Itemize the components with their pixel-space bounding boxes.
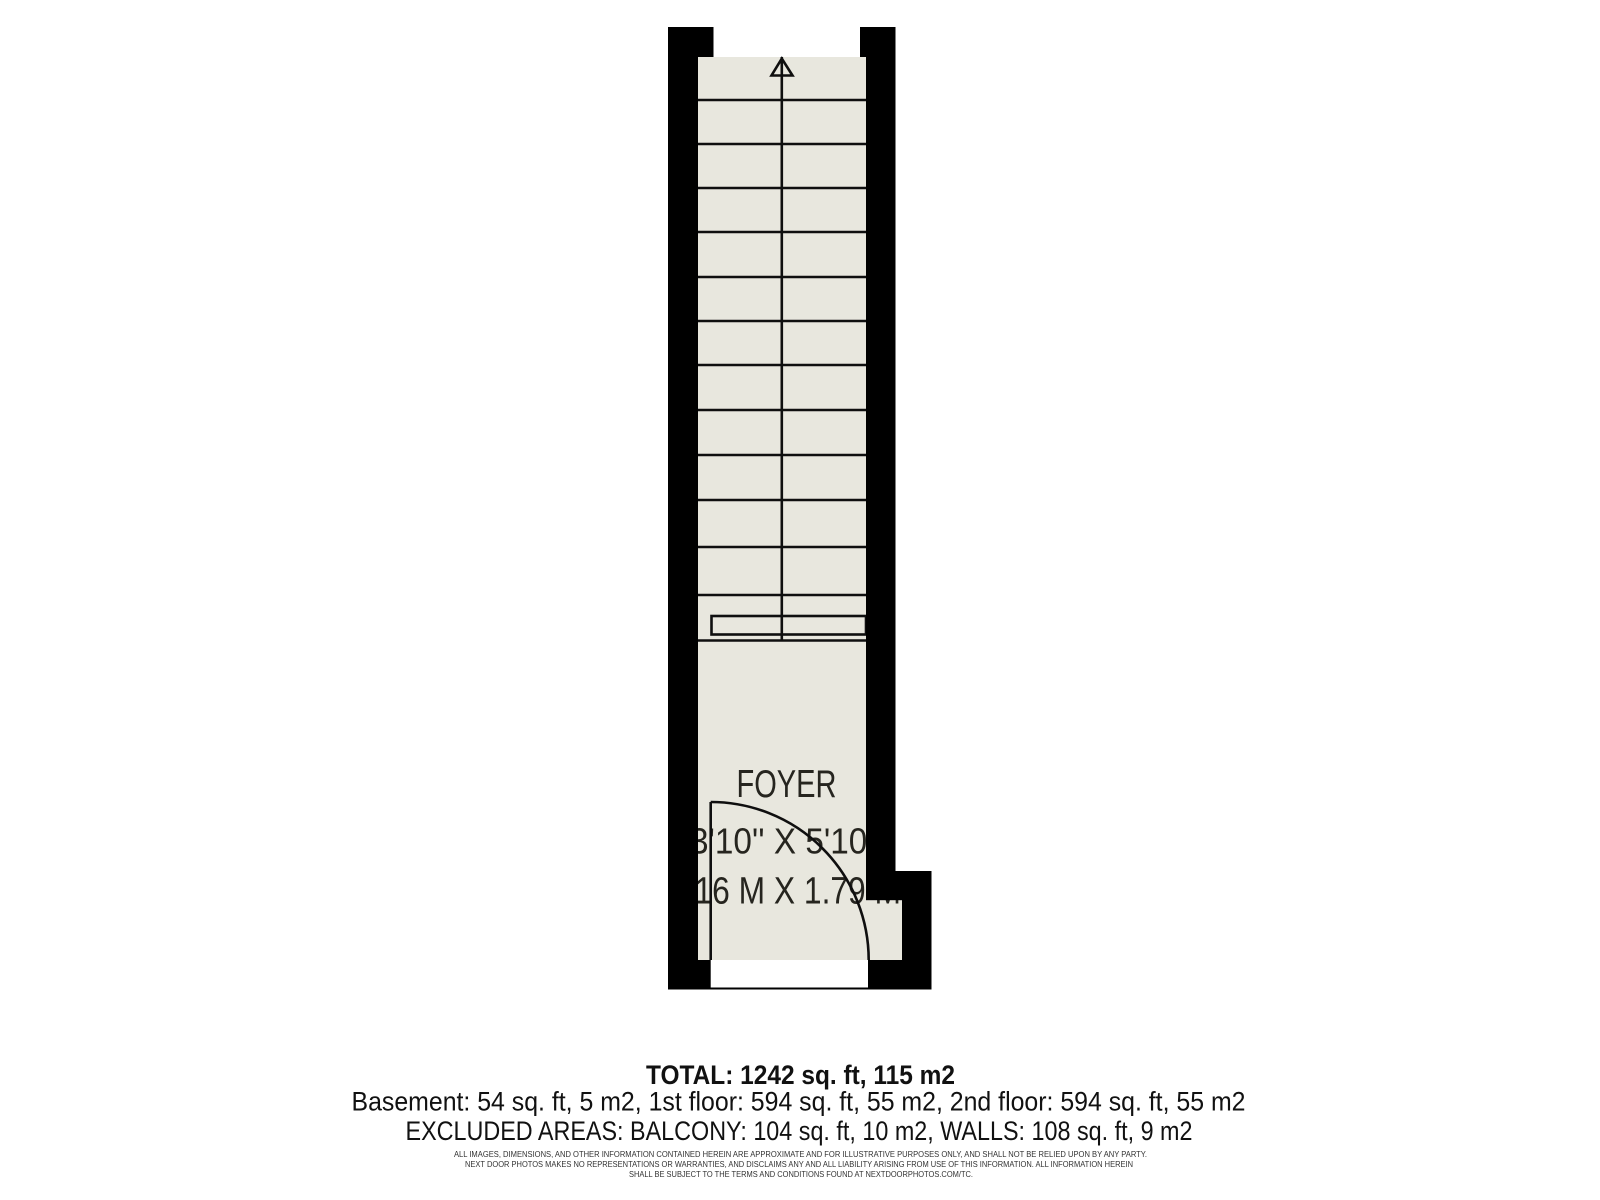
svg-text:NEXT DOOR PHOTOS MAKES NO REPR: NEXT DOOR PHOTOS MAKES NO REPRESENTATION… — [465, 1160, 1133, 1169]
svg-text:3'10'' X 5'10'': 3'10'' X 5'10'' — [690, 821, 880, 862]
svg-text:TOTAL: 1242 sq. ft, 115 m2: TOTAL: 1242 sq. ft, 115 m2 — [646, 1060, 955, 1090]
svg-text:Basement: 54 sq. ft, 5 m2, 1st: Basement: 54 sq. ft, 5 m2, 1st floor: 59… — [352, 1087, 1246, 1117]
svg-text:SHALL BE SUBJECT TO THE TERMS: SHALL BE SUBJECT TO THE TERMS AND CONDIT… — [629, 1170, 973, 1179]
svg-text:FOYER: FOYER — [737, 763, 837, 806]
svg-text:ALL IMAGES, DIMENSIONS, AND OT: ALL IMAGES, DIMENSIONS, AND OTHER INFORM… — [454, 1150, 1147, 1159]
svg-text:EXCLUDED AREAS: BALCONY: 104 s: EXCLUDED AREAS: BALCONY: 104 sq. ft, 10 … — [406, 1116, 1193, 1146]
